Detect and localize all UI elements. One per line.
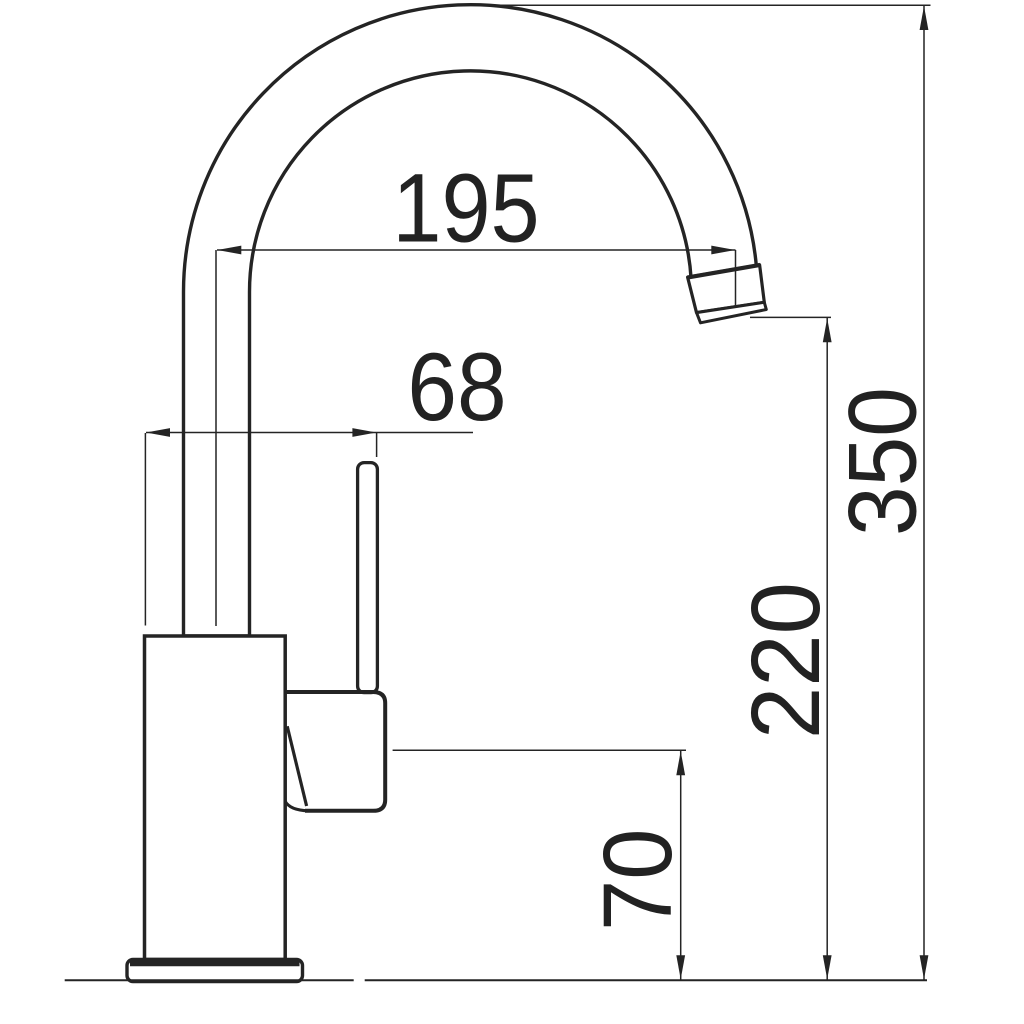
svg-text:68: 68 [407,333,506,441]
svg-text:220: 220 [733,582,841,739]
svg-text:70: 70 [584,829,693,931]
svg-text:195: 195 [392,154,539,263]
svg-text:350: 350 [828,387,936,536]
